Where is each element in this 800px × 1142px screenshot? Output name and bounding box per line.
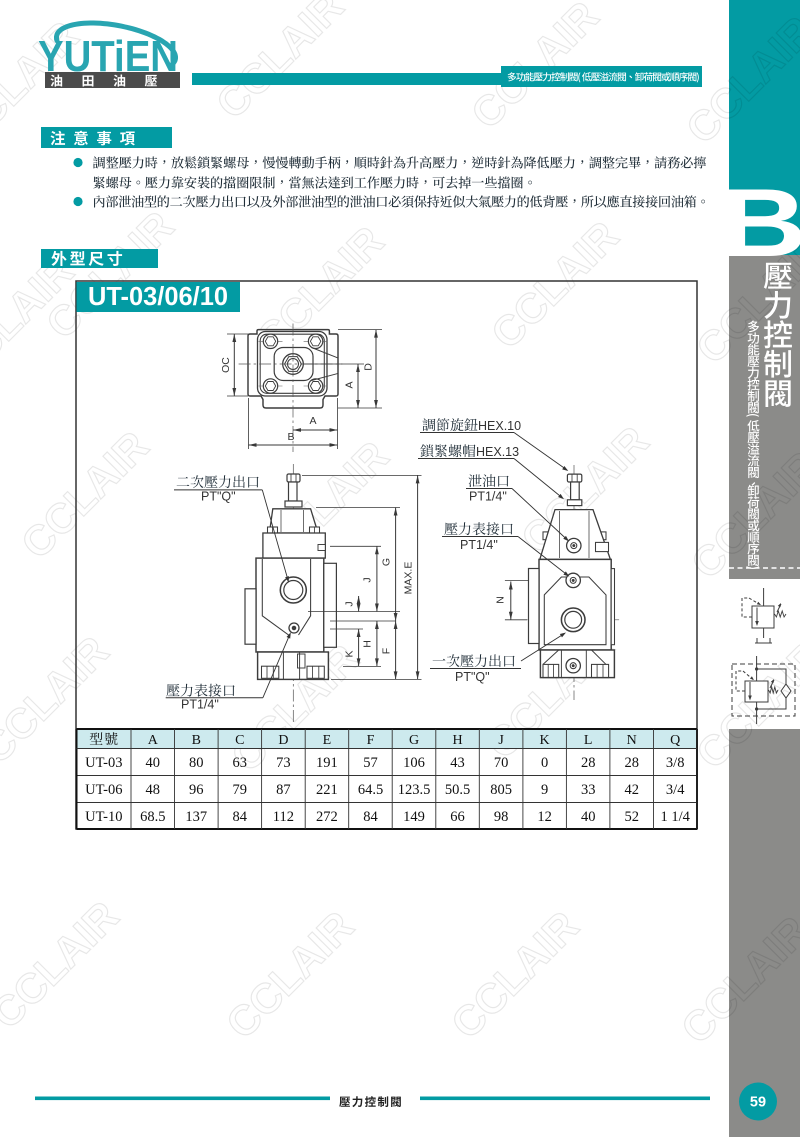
svg-text:87: 87 — [276, 782, 291, 798]
svg-text:B: B — [720, 169, 800, 277]
svg-text:PT"Q": PT"Q" — [201, 490, 236, 504]
svg-text:40: 40 — [146, 755, 161, 771]
svg-text:221: 221 — [316, 782, 338, 798]
svg-text:48: 48 — [146, 782, 161, 798]
svg-text:70: 70 — [494, 755, 509, 771]
svg-text:F: F — [381, 648, 393, 654]
svg-text:40: 40 — [581, 809, 596, 825]
svg-text:42: 42 — [624, 782, 639, 798]
svg-text:UT-06: UT-06 — [85, 782, 122, 798]
svg-text:D: D — [363, 363, 375, 371]
svg-text:805: 805 — [490, 782, 512, 798]
svg-text:C: C — [235, 733, 244, 748]
svg-text:33: 33 — [581, 782, 596, 798]
svg-text:MAX.E: MAX.E — [403, 562, 415, 595]
svg-text:Q: Q — [670, 733, 680, 748]
svg-text:PT"Q": PT"Q" — [455, 670, 490, 684]
svg-text:N: N — [495, 596, 507, 604]
svg-text:112: 112 — [273, 809, 294, 825]
svg-text:K: K — [540, 733, 550, 748]
svg-text:D: D — [278, 733, 288, 748]
svg-text:J: J — [362, 577, 374, 582]
svg-text:96: 96 — [189, 782, 204, 798]
svg-text:52: 52 — [624, 809, 639, 825]
svg-text:PT1/4": PT1/4" — [469, 490, 507, 504]
svg-text:28: 28 — [624, 755, 639, 771]
svg-text:106: 106 — [403, 755, 425, 771]
svg-text:9: 9 — [541, 782, 548, 798]
svg-text:149: 149 — [403, 809, 425, 825]
svg-text:59: 59 — [750, 1095, 766, 1111]
svg-text:B: B — [192, 733, 201, 748]
svg-text:HEX.13: HEX.13 — [476, 445, 519, 459]
svg-text:272: 272 — [316, 809, 338, 825]
svg-text:N: N — [627, 733, 637, 748]
svg-text:HEX.10: HEX.10 — [478, 419, 521, 433]
svg-text:137: 137 — [185, 809, 207, 825]
svg-text:A: A — [148, 733, 159, 748]
svg-text:57: 57 — [363, 755, 378, 771]
svg-text:K: K — [344, 650, 356, 657]
svg-text:F: F — [367, 733, 375, 748]
svg-text:UT-10: UT-10 — [85, 809, 122, 825]
svg-text:73: 73 — [276, 755, 291, 771]
svg-text:PT1/4": PT1/4" — [181, 698, 219, 712]
svg-text:B: B — [287, 431, 294, 443]
svg-text:84: 84 — [233, 809, 248, 825]
svg-text:OC: OC — [220, 357, 232, 373]
svg-text:A: A — [309, 415, 316, 427]
svg-text:84: 84 — [363, 809, 378, 825]
svg-text:80: 80 — [189, 755, 204, 771]
svg-text:UT-03: UT-03 — [85, 755, 122, 771]
svg-text:UT-03/06/10: UT-03/06/10 — [88, 281, 228, 311]
svg-text:191: 191 — [316, 755, 338, 771]
svg-text:98: 98 — [494, 809, 509, 825]
svg-text:PT1/4": PT1/4" — [460, 538, 498, 552]
svg-text:63: 63 — [233, 755, 248, 771]
svg-text:3/4: 3/4 — [666, 782, 685, 798]
svg-text:66: 66 — [450, 809, 465, 825]
svg-text:79: 79 — [233, 782, 248, 798]
svg-text:28: 28 — [581, 755, 596, 771]
svg-text:68.5: 68.5 — [140, 809, 165, 825]
svg-text:H: H — [362, 640, 374, 648]
svg-text:J: J — [498, 733, 504, 748]
svg-text:J: J — [344, 601, 356, 606]
svg-text:H: H — [452, 733, 462, 748]
svg-text:43: 43 — [450, 755, 465, 771]
svg-text:L: L — [584, 733, 593, 748]
svg-text:12: 12 — [537, 809, 552, 825]
svg-text:1 1/4: 1 1/4 — [660, 809, 690, 825]
svg-text:E: E — [323, 733, 332, 748]
svg-text:G: G — [381, 558, 393, 566]
svg-text:3/8: 3/8 — [666, 755, 685, 771]
svg-text:50.5: 50.5 — [445, 782, 470, 798]
svg-text:A: A — [344, 381, 356, 388]
svg-text:64.5: 64.5 — [358, 782, 383, 798]
svg-text:123.5: 123.5 — [398, 782, 431, 798]
svg-text:G: G — [409, 733, 419, 748]
svg-text:0: 0 — [541, 755, 548, 771]
